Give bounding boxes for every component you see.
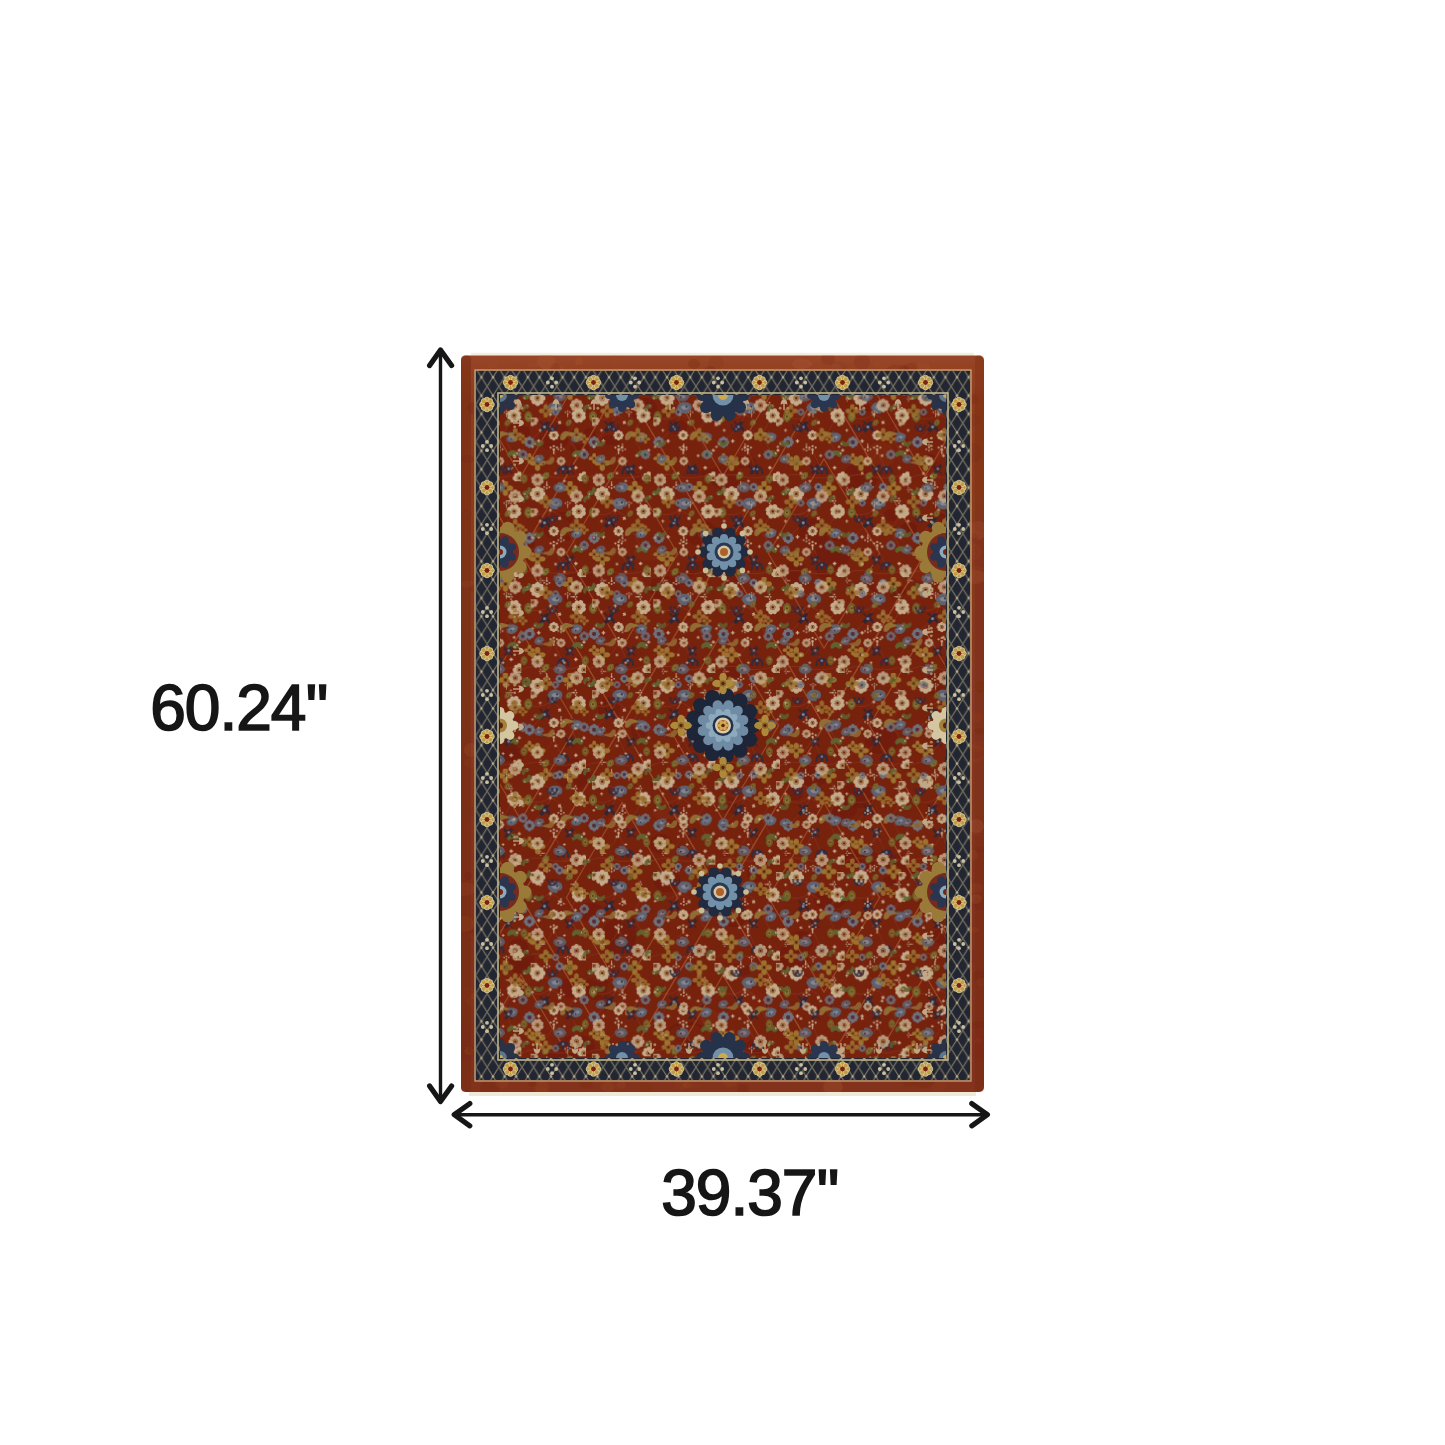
svg-text:39.37'': 39.37'' [661, 1157, 839, 1229]
svg-text:60.24'': 60.24'' [150, 672, 328, 744]
